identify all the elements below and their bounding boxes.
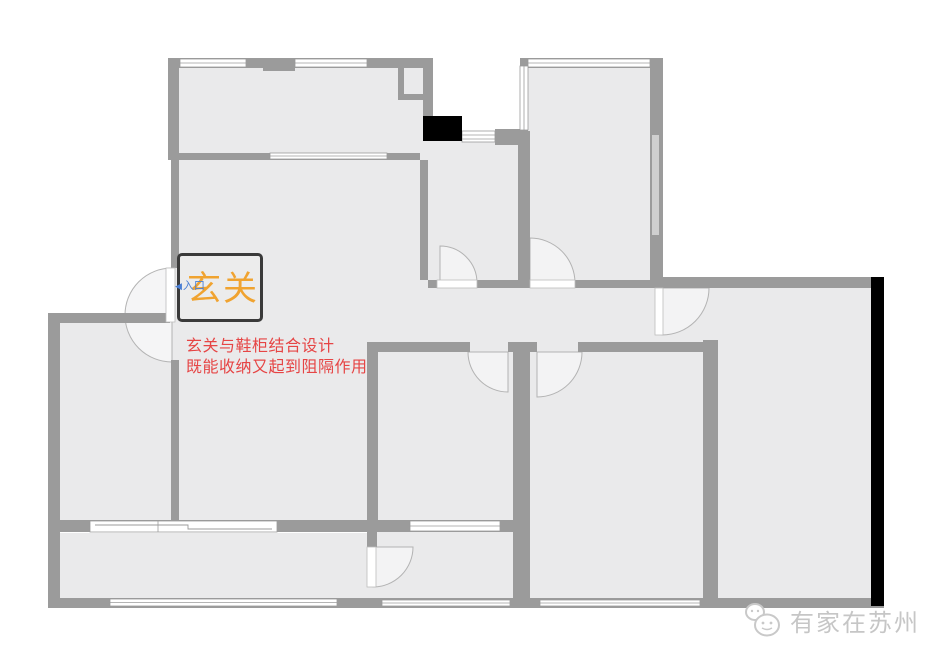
window [110, 599, 337, 606]
window [462, 131, 495, 142]
floor-plan-page: 玄关 ◀ 入口 玄关与鞋柜结合设计 既能收纳又起到阻隔作用 有家在苏州 [0, 0, 939, 664]
window [382, 600, 510, 606]
window-vertical [520, 66, 528, 130]
window [540, 600, 700, 606]
annotation-line-2: 既能收纳又起到阻隔作用 [186, 357, 368, 378]
chat-bubbles-logo-icon [740, 600, 786, 640]
sliding-door [90, 521, 277, 532]
outer-wall-black [871, 277, 884, 606]
floor-plan-canvas [0, 0, 939, 664]
window [180, 59, 246, 67]
window [295, 59, 367, 67]
annotation-text: 玄关与鞋柜结合设计 既能收纳又起到阻隔作用 [186, 336, 368, 378]
entrance-marker: ◀ 入口 [175, 281, 205, 292]
entrance-label: 入口 [183, 281, 205, 292]
watermark-text: 有家在苏州 [790, 603, 920, 638]
window [528, 59, 650, 67]
window-inset [652, 135, 659, 235]
annotation-line-1: 玄关与鞋柜结合设计 [186, 336, 368, 357]
left-arrow-icon: ◀ [175, 282, 182, 291]
shaft-black-box [423, 116, 462, 141]
watermark: 有家在苏州 [740, 600, 920, 640]
window [410, 521, 500, 531]
interior-window [270, 153, 387, 159]
